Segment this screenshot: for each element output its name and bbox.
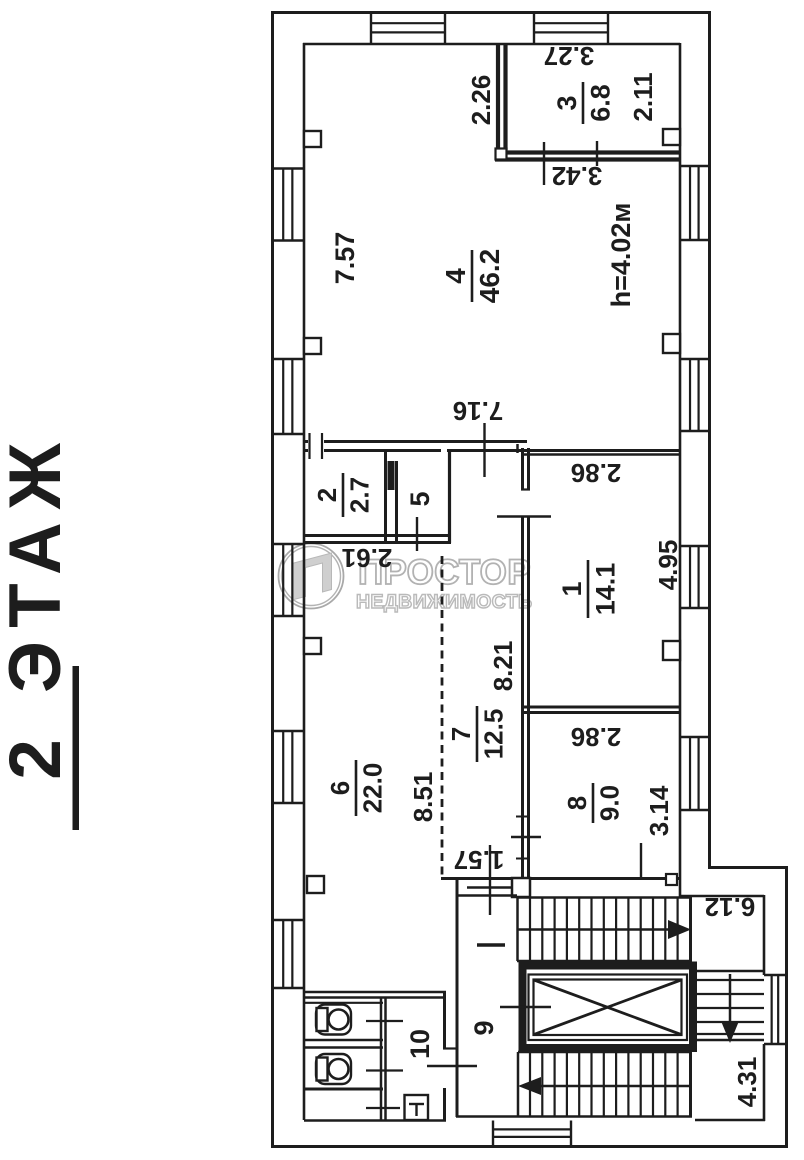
- svg-text:14.1: 14.1: [590, 563, 620, 616]
- svg-text:3.14: 3.14: [644, 785, 674, 836]
- svg-text:2.11: 2.11: [628, 72, 658, 121]
- svg-text:12.5: 12.5: [479, 709, 509, 760]
- svg-text:8.51: 8.51: [408, 772, 438, 823]
- svg-text:2 ЭТАЖ: 2 ЭТАЖ: [0, 430, 76, 780]
- svg-text:7.57: 7.57: [330, 232, 360, 285]
- svg-text:6.12: 6.12: [705, 892, 756, 922]
- svg-text:2.26: 2.26: [466, 75, 496, 126]
- svg-text:6: 6: [325, 781, 355, 795]
- svg-text:3: 3: [552, 95, 582, 110]
- svg-text:2.86: 2.86: [571, 458, 622, 488]
- svg-text:8: 8: [562, 796, 592, 810]
- svg-text:9.0: 9.0: [595, 785, 625, 821]
- svg-text:НЕДВИЖИМОСТЬ: НЕДВИЖИМОСТЬ: [356, 591, 532, 613]
- svg-text:1.57: 1.57: [454, 845, 505, 875]
- svg-text:6.8: 6.8: [585, 84, 615, 122]
- svg-text:1: 1: [557, 581, 587, 596]
- svg-text:2.86: 2.86: [571, 722, 622, 752]
- svg-text:4: 4: [440, 268, 471, 284]
- svg-text:46.2: 46.2: [474, 249, 505, 304]
- svg-text:4.95: 4.95: [653, 540, 683, 591]
- svg-text:5: 5: [405, 491, 435, 506]
- svg-text:2.7: 2.7: [345, 477, 375, 513]
- svg-text:3.42: 3.42: [552, 161, 603, 191]
- svg-text:10: 10: [405, 1029, 435, 1059]
- svg-text:4.31: 4.31: [732, 1057, 762, 1108]
- svg-text:2: 2: [312, 488, 342, 502]
- svg-text:2.61: 2.61: [342, 543, 393, 573]
- svg-text:3.27: 3.27: [544, 41, 595, 71]
- svg-text:9: 9: [469, 1020, 499, 1035]
- svg-text:7.16: 7.16: [453, 396, 504, 426]
- svg-text:h=4.02м: h=4.02м: [606, 203, 636, 308]
- svg-text:22.0: 22.0: [358, 763, 388, 814]
- svg-text:8.21: 8.21: [488, 641, 518, 692]
- svg-text:7: 7: [446, 727, 476, 741]
